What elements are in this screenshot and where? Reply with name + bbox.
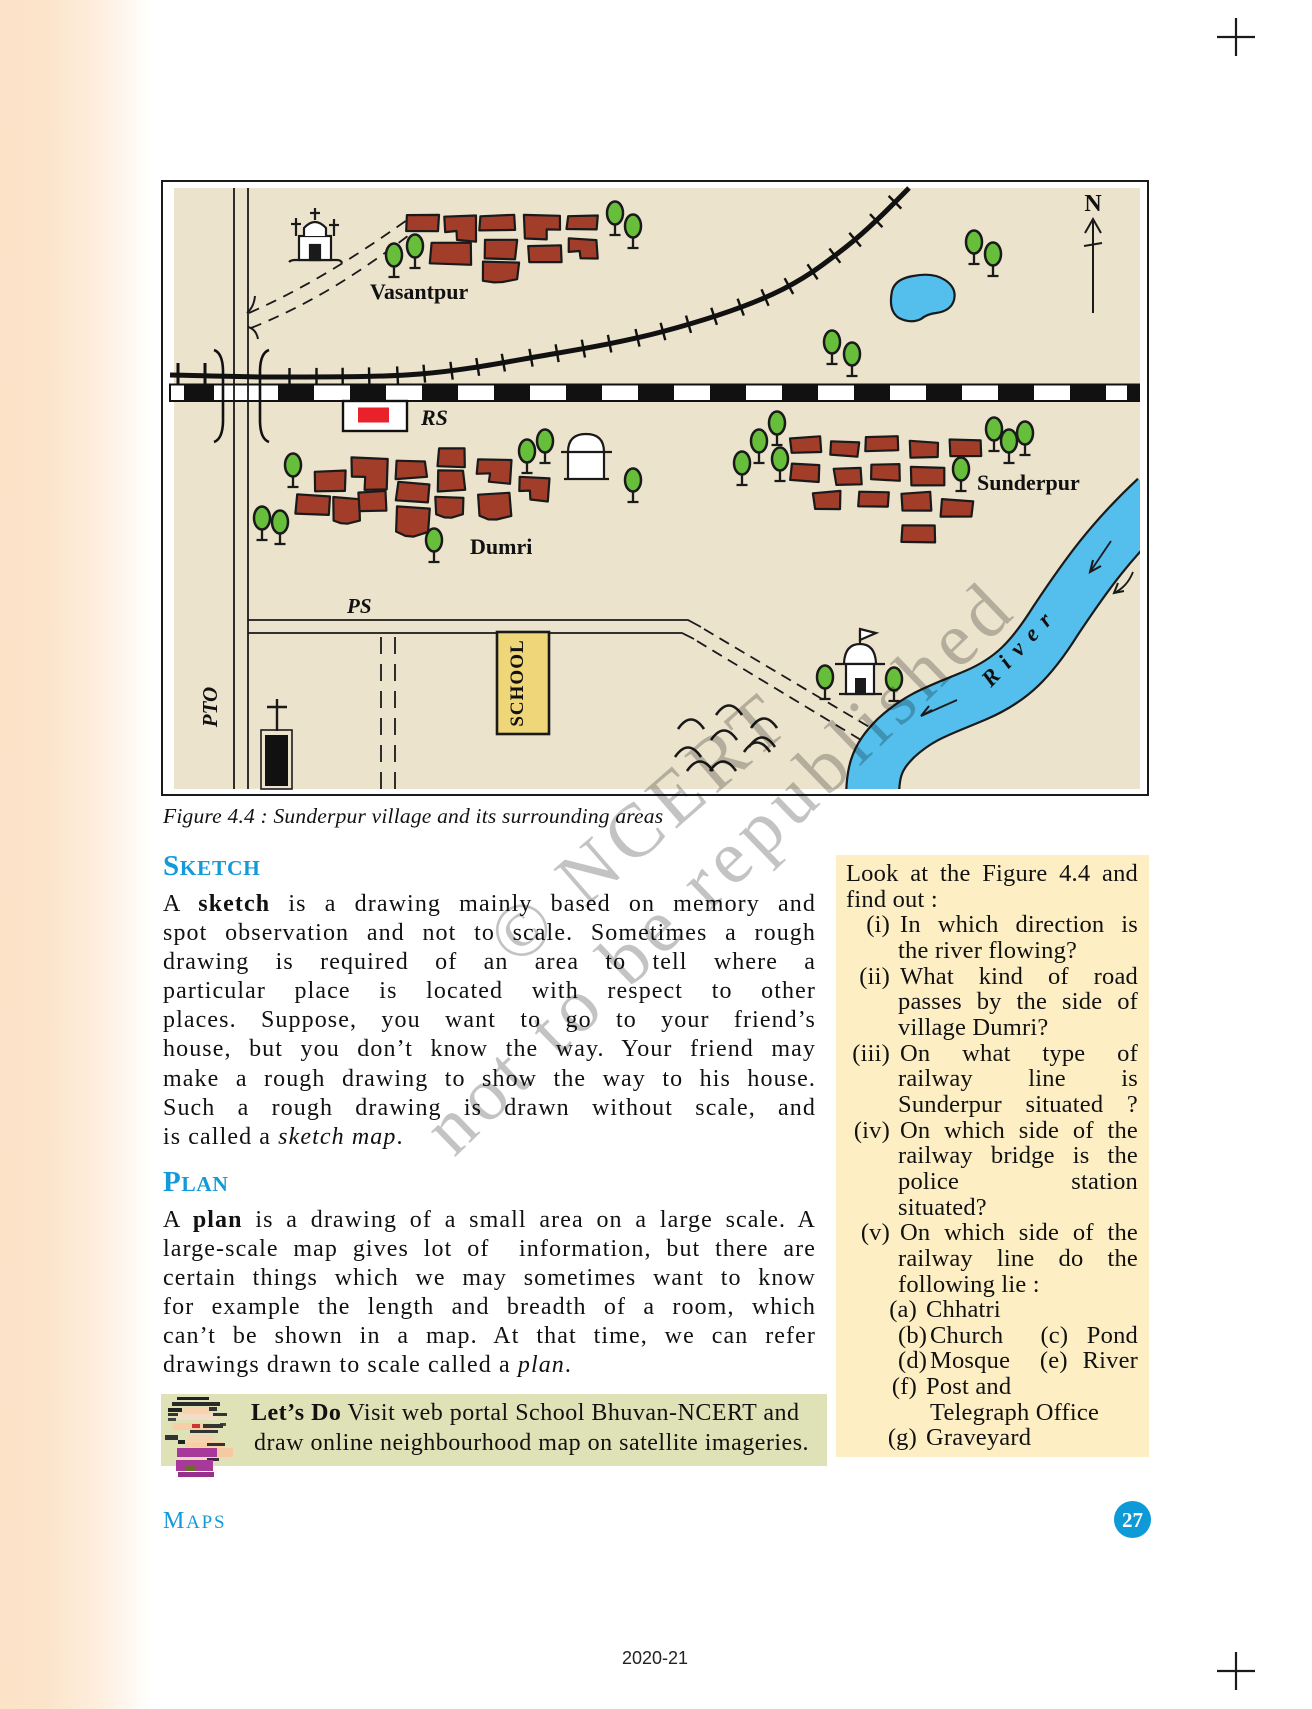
svg-text:Vasantpur: Vasantpur bbox=[370, 279, 468, 304]
svg-text:N: N bbox=[1084, 191, 1102, 217]
svg-text:SCHOOL: SCHOOL bbox=[507, 639, 528, 726]
svg-text:RS: RS bbox=[420, 405, 448, 430]
svg-text:PTO: PTO bbox=[198, 687, 222, 728]
svg-text:Sunderpur: Sunderpur bbox=[977, 470, 1080, 495]
svg-text:PS: PS bbox=[346, 594, 372, 618]
svg-text:Dumri: Dumri bbox=[470, 534, 532, 559]
